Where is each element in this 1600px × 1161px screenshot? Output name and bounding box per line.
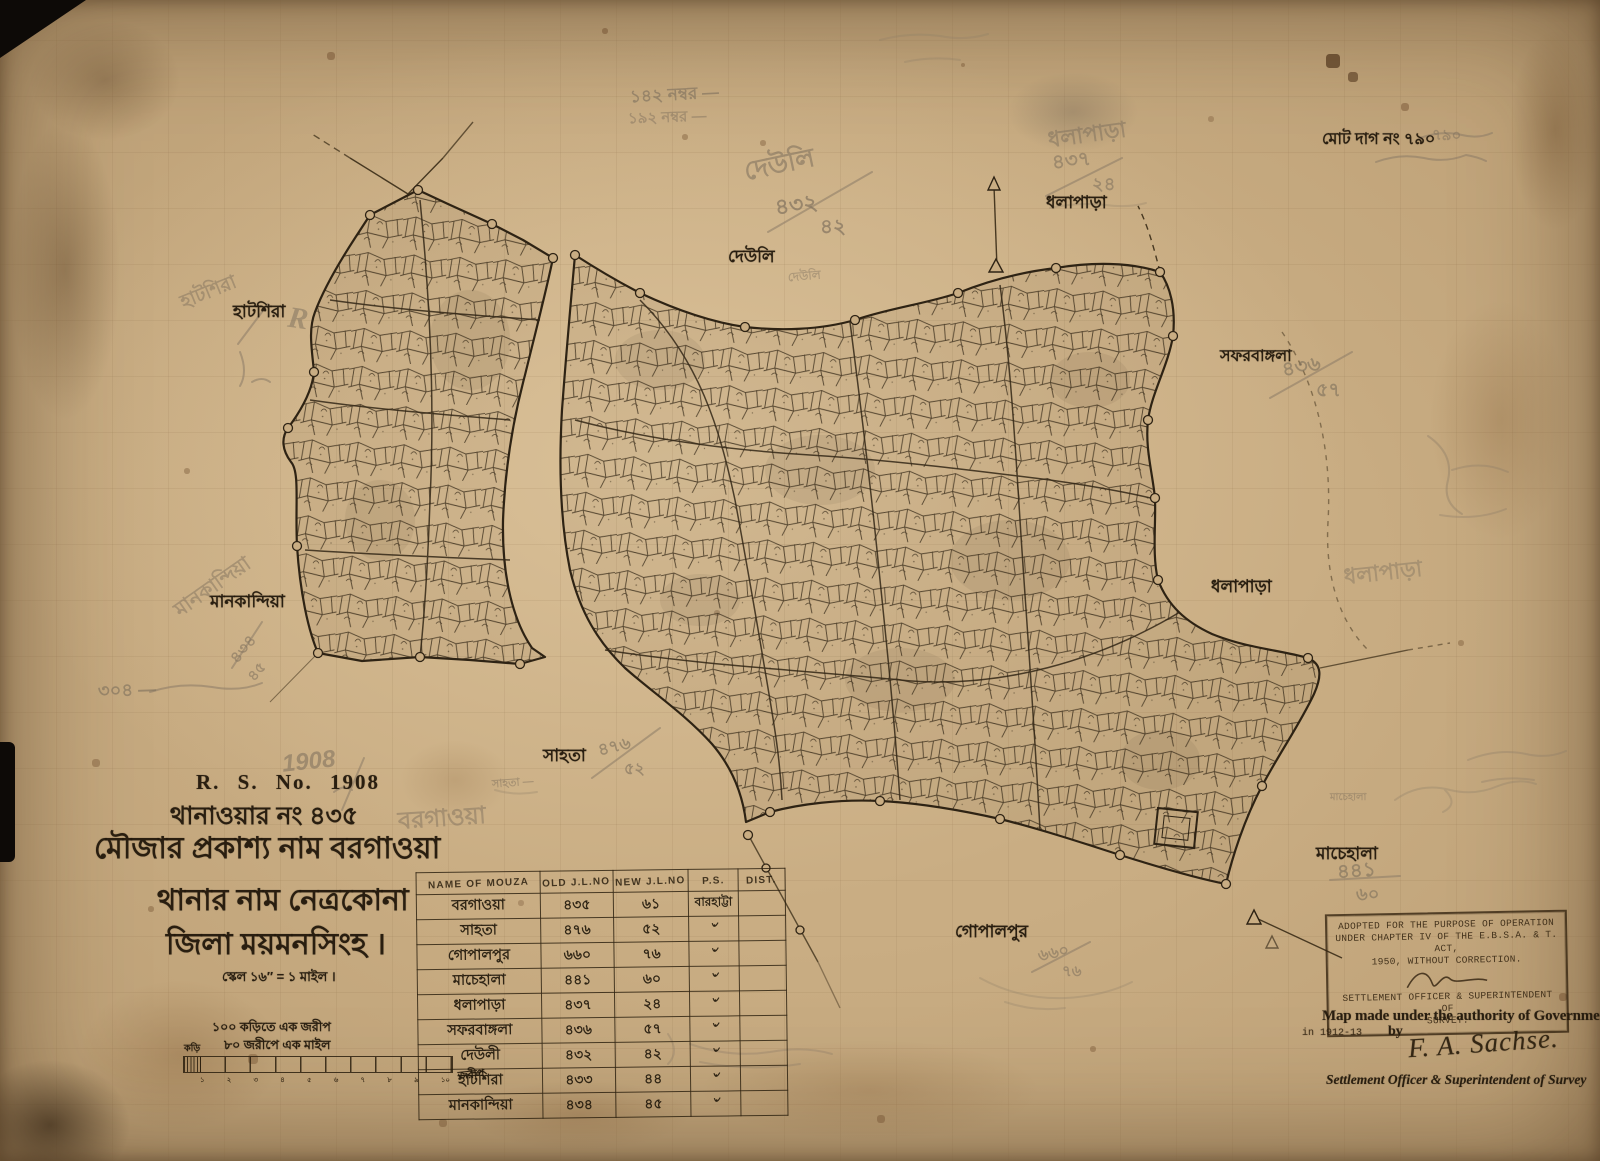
scale-bar-ticks: ১২৩৪৫৬৭৮৯১০ [200,1074,450,1086]
mouza-left-block [283,190,553,664]
old-jl: ৪৭৬ [540,917,613,943]
tick-label: ৬ [334,1074,339,1086]
old-jl: ৪৩৬ [542,1017,615,1043]
mouza-name: গোপালপুর [417,943,541,970]
label-deuli: দেউলি [728,244,775,272]
new-jl: ৫৭ [615,1016,691,1042]
new-jl: ৬০ [614,966,690,992]
ps: ৺ [689,916,739,942]
header-name-of-mouza: NAME OF MOUZA [416,870,541,897]
pencil-dhalapara-frac-new: ২৪ [1092,170,1115,201]
ps: ৺ [689,941,739,967]
old-jl: ৪৩৫ [540,892,613,918]
ps: বারহাট্টা [689,891,739,917]
old-jl: ৪৪১ [541,967,614,993]
paper-background: R. S. No. 1908 থানাওয়ার নং ৪৩৫ মৌজার প্… [0,0,1600,1161]
stamp-initials-signature [1401,966,1493,992]
tick-label: ৪ [280,1074,285,1086]
mouza-name: হাটশিরা [418,1068,542,1095]
pencil-total-790: ৭৯০ [1432,123,1462,149]
pencil-machehala-small: মাচেহালা [1330,790,1366,807]
tick-label: ২ [227,1074,232,1086]
label-gopalpur: গোপালপুর [955,919,1028,947]
scale-note-2: ৮০ জরীপে এক মাইল [224,1037,330,1057]
label-hatshira: হাটশিরা [233,299,285,327]
dist [738,915,786,941]
dist [740,1065,788,1091]
dist [738,890,786,916]
old-jl: ৪৩২ [542,1042,615,1068]
ps: ৺ [690,991,740,1017]
ps: ৺ [691,1091,741,1117]
scanned-map-sheet: R. S. No. 1908 থানাওয়ার নং ৪৩৫ মৌজার প্… [0,0,1600,1161]
dist [740,1040,788,1066]
new-jl: ৭৬ [614,941,690,967]
header-dist: DIST. [737,868,785,892]
dist [740,1015,788,1041]
pencil-deuli-frac-old: ৪৩২ [773,185,821,228]
pencil-note-304: ৩০৪ — [97,675,156,708]
pencil-plot-192: ১৯২ নম্বর — [628,105,707,133]
pencil-sahata-small: সাহতা — [491,773,534,795]
pencil-sahata-frac-new: ৫২ [624,756,645,783]
pencil-year-1908: 1908 [281,745,337,778]
old-jl: ৬৬০ [541,942,614,968]
new-jl: ৪২ [615,1041,691,1067]
mouza-name: ধলাপাড়া [417,993,541,1020]
table-header-row: NAME OF MOUZA OLD J.L.NO NEW J.L.NO P.S.… [416,868,785,895]
scale-note-1: ১০০ কড়িতে এক জরীপ [212,1019,331,1039]
tick-label: ১ [200,1074,205,1086]
scale-bar [183,1056,453,1073]
scale-bar-segments [201,1057,452,1072]
ps: ৺ [690,1041,740,1067]
scale-line: স্কেল ১৬″ = ১ মাইল । [222,968,336,989]
pencil-gopal-frac-new: ৭৬ [1062,960,1082,985]
label-sahata: সাহতা [543,743,586,771]
new-jl: ৪৫ [616,1091,692,1117]
pencil-deuli-faint: দেউলি [787,267,822,290]
authority-line: Map made under the authority of Governme… [1322,1008,1600,1025]
dist [740,1090,788,1116]
scale-bar-hatched-segment [184,1057,201,1072]
old-jl: ৪৩৩ [542,1067,615,1093]
tick-label: ৩ [254,1074,259,1086]
authority-year: in 1912-13 [1302,1028,1362,1039]
tick-label: ৭ [361,1074,366,1086]
header-new-jl-no: NEW J.L.NO [613,868,689,893]
header-old-jl-no: OLD J.L.NO [540,869,614,894]
scale-bar-left-label: কড়ি [184,1042,200,1057]
mouza-name: মানকান্দিয়া [419,1093,543,1120]
pencil-machehala-frac-new: ৬০ [1356,880,1379,911]
dist [739,965,787,991]
old-jl: ৪৩৭ [541,992,614,1018]
pencil-dhalapara-frac-old: ৪৩৭ [1050,144,1092,181]
ps: ৺ [689,966,739,992]
new-jl: ৪৪ [615,1066,691,1092]
new-jl: ৬১ [613,891,689,917]
mouza-name: মাচেহালা [417,968,541,995]
pencil-deuli-frac-new: ৪২ [820,212,846,245]
tick-label: ৫ [307,1074,312,1086]
authority-by: by [1388,1024,1403,1040]
mouza-right-block [561,255,1320,884]
mouza-name: সফরবাঙ্গলা [418,1018,542,1045]
mouza-name: সাহতা [417,918,541,945]
header-ps: P.S. [688,868,738,892]
authority-title-line: Settlement Officer & Superintendent of S… [1326,1072,1586,1088]
old-jl: ৪৩৪ [543,1092,616,1118]
tick-label: ৮ [387,1074,392,1086]
mouza-name-line: মৌজার প্রকাশ্য নাম বরগাওয়া [94,824,440,875]
total-plots-note: মোট দাগ নং ৭৯০ [1322,126,1435,153]
pencil-borgaowa: বরগাওয়া [397,797,488,843]
pencil-safar-frac-new: ৫৭ [1316,376,1341,408]
dist [739,940,787,966]
mouza-name: দেউলী [418,1043,542,1070]
mouza-name: বরগাওয়া [416,893,540,920]
table-row: মানকান্দিয়া৪৩৪৪৫৺ [419,1090,788,1120]
ps: ৺ [690,1016,740,1042]
dist [739,990,787,1016]
new-jl: ২৪ [614,991,690,1017]
new-jl: ৫২ [614,916,690,942]
ps: ৺ [691,1066,741,1092]
mouza-jl-table: NAME OF MOUZA OLD J.L.NO NEW J.L.NO P.S.… [415,868,788,1121]
district-line: জিলা ময়মনসিংহ । [166,920,386,971]
label-dhalapara-right: ধলাপাড়া [1211,574,1272,602]
